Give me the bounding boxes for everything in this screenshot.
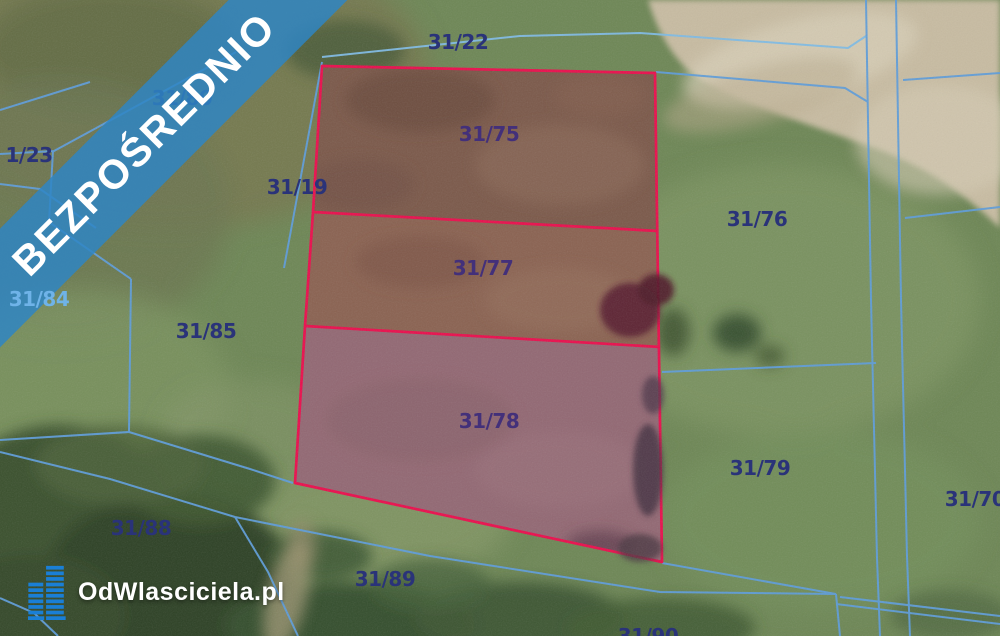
parcel-label-1-23: 1/23: [5, 143, 52, 167]
parcel-label-31-88: 31/88: [111, 516, 171, 540]
parcel-label-31-78: 31/78: [459, 409, 519, 433]
parcel-label-31-75: 31/75: [459, 122, 519, 146]
parcel-label-31-90: 31/90: [618, 624, 678, 636]
parcel-label-31-89: 31/89: [355, 567, 415, 591]
parcel-label-31-19: 31/19: [267, 175, 327, 199]
parcel-label-31-85: 31/85: [176, 319, 236, 343]
watermark-text: OdWlasciciela.pl: [78, 578, 285, 607]
parcel-label-31-79: 31/79: [730, 456, 790, 480]
parcel-label-31-70: 31/70: [945, 487, 1000, 511]
parcel-label-31-84: 31/84: [9, 287, 69, 311]
listing-photo-map: 31/22 31/80 1/23 31/19 31/75 31/76 31/77…: [0, 0, 1000, 636]
watermark: OdWlasciciela.pl: [28, 564, 285, 620]
parcel-label-31-22: 31/22: [428, 30, 488, 54]
parcel-label-31-76: 31/76: [727, 207, 787, 231]
buildings-icon: [28, 564, 66, 620]
parcel-label-31-77: 31/77: [453, 256, 513, 280]
